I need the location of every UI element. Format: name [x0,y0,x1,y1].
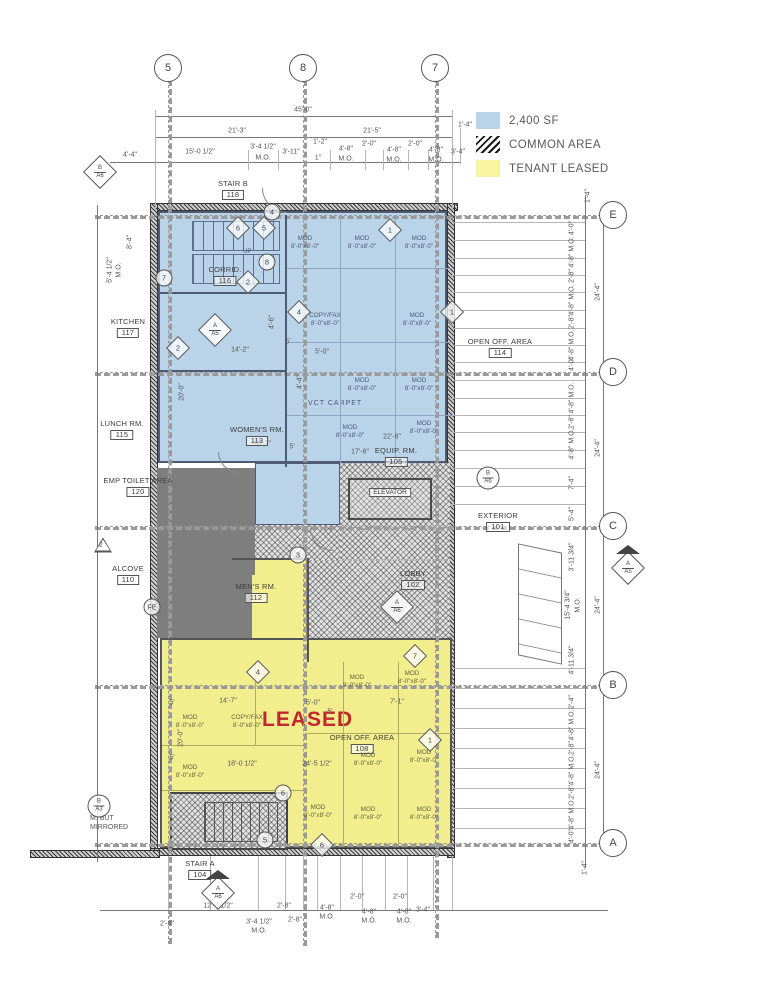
dimension-label: 4'-4" [123,152,137,159]
grid-bubble-7: 7 [421,54,449,82]
line [303,856,304,910]
dimension-label: 4'-8" M.O. [569,382,576,413]
elevator-label: ELEVATOR [369,488,411,497]
line [452,432,585,433]
room-tag-113: WOMEN'S RM.113 [230,426,284,446]
dimension-label: 5' [289,444,294,451]
cubicle-label: MOD8'-0"x8'-0" [336,424,364,440]
dimension-label: 4'-8" M.O. [569,798,576,829]
line [100,910,608,911]
dimension-label: 24'-4" [595,439,602,457]
room-tag-110: ALCOVE110 [112,565,144,585]
dimension-label: 1'-4" [582,861,589,875]
line [395,215,396,465]
dimension-label: 45'-0" [294,107,312,114]
ref-tag-triangle [616,545,640,554]
line [408,150,409,170]
room-number: 116 [214,276,237,287]
line [317,856,318,910]
line [452,768,585,769]
dimension-label: M.O. [255,155,270,162]
line [452,380,585,381]
room-name: CORRID. [208,266,241,275]
line [452,110,453,210]
line [168,80,172,944]
room-name: LUNCH RM. [100,420,143,429]
dimension-label: 15'-4 3/4" [565,590,572,620]
dimension-label: 4'-8" [387,147,401,154]
line [285,415,452,416]
keynote-tag: 5 [257,832,274,849]
elevator-shaft: ELEVATOR [348,478,432,520]
room-number: 110 [117,575,140,586]
dimension-label: 2'-8" [569,741,576,755]
line [365,150,366,170]
cubicle-label: MOD8'-0"x8'-0" [291,235,319,251]
legend-row-leased: TENANT LEASED [476,160,609,177]
line [407,856,408,910]
dimension-label: 14'-7" [219,698,237,705]
cubicle-label: MOD8'-0"x8'-0" [405,235,433,251]
dimension-label: 2'-8" [569,315,576,329]
ref-tag: AA5 [611,551,645,585]
legend-swatch-hatch [476,136,500,153]
room-name: OPEN OFF. AREA [330,734,394,743]
dimension-label: 22'-6" [383,434,401,441]
vct-carpet-note: VCT CARPET [308,400,362,407]
dimension-label: 4'-8" M.O. [569,428,576,459]
dimension-label: 14'-2" [231,347,249,354]
legend: 2,400 SF COMMON AREA TENANT LEASED [476,112,609,184]
dimension-label: 2'-8" [277,903,291,910]
room-number: 102 [401,580,424,591]
dimension-label: 20'-0" [179,383,186,401]
dimension-label: 2'-0" [408,141,422,148]
room-tag-115: LUNCH RM.115 [100,420,143,440]
cubicle-label: MOD8'-0"x8'-0" [354,752,382,768]
line [258,856,259,910]
dimension-label: 2'-8" [569,269,576,283]
dimension-label: 3'-4 1/2" [250,144,276,151]
room-tag-105: EQUIP. RM.105 [375,447,417,467]
line [452,688,585,689]
room-number: 118 [222,190,245,201]
line [452,788,585,789]
line [452,415,585,416]
room-tag-112: MEN'S RM.112 [236,583,277,603]
dimension-label: 24'-4" [595,596,602,614]
dimension-label: 4'-11 3/4" [569,646,576,675]
dimension-label: 4'-8" M.O. [569,329,576,360]
line [307,558,309,662]
dimension-label: M.O. [319,914,334,921]
grid-bubble-E: E [599,201,627,229]
dimension-label: 5' [169,700,174,707]
room-name: STAIR B [218,180,248,189]
dimension-label: 4'-4" [297,375,304,389]
cubicle-label: MOD8'-0"x8'-0" [398,670,426,686]
room-name: EXTERIOR [478,512,518,521]
line [385,856,386,910]
cubicle-label: MOD8'-0"x8'-0" [354,806,382,822]
dimension-label: 15'-0 1/2" [185,149,215,156]
room-name: OPEN OFF. AREA [468,338,532,347]
line [452,486,585,487]
room-tag-117: KITCHEN117 [111,318,145,338]
line [157,292,285,294]
line [452,292,585,293]
legend-row-common: COMMON AREA [476,136,609,153]
line [452,258,585,259]
dimension-label: 2'-8" [288,917,302,924]
dimension-label: 5'-4 1/2" [107,257,114,283]
dimension-label: 4'-8" [320,905,334,912]
dimension-label: 3'-4 1/2" [246,919,272,926]
grid-bubble-B: B [599,671,627,699]
line [285,342,452,343]
dimension-label: 24'-5 1/2" [302,761,332,768]
line [383,150,384,170]
dimension-label: 18'-0 1/2" [227,761,257,768]
dimension-label: M.O. [116,262,123,277]
dimension-label: 2'-8" [569,785,576,799]
line [97,205,98,862]
line [330,150,331,170]
dimension-label: 5'-4" [569,507,576,521]
grid-bubble-A: A [599,829,627,857]
dimension-label: 4'-8" M.O. [569,284,576,315]
dimension-label: 4'-0" [569,221,576,235]
cubicle-label: MOD8'-0"x8'-0" [348,377,376,393]
dimension-label: 21'-5" [363,128,381,135]
line [155,110,156,210]
line [433,856,434,910]
ref-tag-triangle [206,870,230,879]
legend-label-common: COMMON AREA [509,139,601,151]
line [452,828,585,829]
dimension-label: 1'-4" [458,122,472,129]
cubicle-label: MOD8'-0"x8'-0" [176,764,204,780]
cubicle-label: MOD8'-0"x8'-0" [348,235,376,251]
dimension-label: 4'-8" [397,909,411,916]
line [452,310,585,311]
line [248,150,249,170]
room-name: WOMEN'S RM. [230,426,284,435]
line [452,728,585,729]
line [452,748,585,749]
dimension-label: 2'-0" [393,894,407,901]
room-name: LOBBY [400,570,426,579]
cubicle-label: MOD8'-0"x8'-0" [410,749,438,765]
line [452,240,585,241]
room-number: 117 [117,328,140,339]
grid-bubble-8: 8 [289,54,317,82]
dimension-label: M.O. [396,918,411,925]
line [452,275,585,276]
line [460,128,461,164]
grid-bubble-C: C [599,512,627,540]
dimension-label: 4'-6" [269,315,276,329]
dimension-label: M.O. [251,928,266,935]
grid-bubble-D: D [599,358,627,386]
dimension-label: M.O. [575,597,582,612]
dimension-label: 4'-8" [339,146,353,153]
dimension-label: 20'-0" [178,729,185,747]
cubicle-label: MOD8'-0"x8'-0" [304,804,332,820]
keynote-tag: 7 [156,270,173,287]
cubicle-label: COPY/FAX8'-0"x8'-0" [231,714,263,730]
dimension-label: 4'-8" M.O. [569,709,576,740]
ref-tag: BA6 [83,155,117,189]
legend-label-2400sf: 2,400 SF [509,115,559,127]
leased-stamp: LEASED [262,708,353,732]
room-number: 115 [111,430,134,441]
room-tag-120: EMP TOILET AREA120 [103,477,172,497]
dimension-label: 7'-4" [569,476,576,490]
revision-triangle: 2 [94,538,112,553]
line [340,856,341,910]
cubicle-label: MOD8'-0"x8'-0" [176,714,204,730]
dimension-label: 2'-4" [569,695,576,709]
room-name: EQUIP. RM. [375,447,417,456]
dimension-label: 2'-0" [362,141,376,148]
dimension-label: 3'-11" [282,149,299,156]
ref-tag: BA3 [88,795,111,818]
line [168,856,169,910]
dimension-label: 3'-4" [416,907,430,914]
cubicle-label: MOD8'-0"x8'-0" [410,420,438,436]
room-number: 114 [489,348,512,359]
dimension-label: 21'-3" [228,128,246,135]
legend-swatch-yellow [476,160,500,177]
dimension-label: 2'-0" [350,894,364,901]
dimension-label: 1'-4" [585,189,592,203]
line [452,450,585,451]
dimension-label: 24'-4" [595,283,602,301]
room-name: STAIR A [185,860,215,869]
line [285,268,452,269]
room-tag-114: OPEN OFF. AREA114 [468,338,532,358]
line [452,504,585,505]
exterior-stair [518,543,562,664]
keynote-tag: FE [144,599,161,616]
dimension-label: 5' [285,339,290,346]
cubicle-label: COPY/FAX8'-0"x8'-0" [309,312,341,328]
dimension-label: 3'-4" [451,149,465,156]
line [452,708,585,709]
cubicle-label: MOD8'-0"x8'-0" [405,377,433,393]
keynote-tag: 8 [259,254,276,271]
dimension-label: M.O. [428,157,443,164]
dimension-label: 4'-0" [569,357,576,371]
dimension-label: 2'-8" [160,921,174,928]
line [452,468,585,469]
dimension-label: 4'-8" [429,147,443,154]
room-number: 113 [246,436,269,447]
room-number: 120 [126,487,149,498]
cubicle-label: MOD8'-0"x8'-0" [343,674,371,690]
keynote-tag: 3 [290,547,307,564]
room-number: 105 [384,457,407,468]
ref-tag: BA6 [477,467,500,490]
sidewalk-band [30,850,160,858]
line [398,662,399,846]
dimension-label: 1'-2" [313,139,327,146]
floor-plan-canvas: ELEVATOR 2,400 SF COMMON AREA TENANT LEA… [0,0,773,1000]
keynote-tag: 6 [275,785,292,802]
dimension-label: 1" [315,155,321,162]
legend-swatch-blue [476,112,500,129]
dimension-label: 5'-0" [306,700,320,707]
room-name: EMP TOILET AREA [103,477,172,486]
room-name: KITCHEN [111,318,145,327]
legend-row-2400sf: 2,400 SF [476,112,609,129]
legend-label-leased: TENANT LEASED [509,163,609,175]
dimension-label: 8'-4" [127,235,134,249]
cubicle-label: MOD8'-0"x8'-0" [403,312,431,328]
dimension-label: 7'-1" [390,699,404,706]
dimension-label: 17'-6" [351,449,369,456]
dimension-label: M.O. [361,918,376,925]
dimension-label: 24'-4" [595,761,602,779]
dimension-label: M.O. [386,157,401,164]
line [278,150,279,170]
cubicle-label: MOD8'-0"x8'-0" [410,806,438,822]
line [452,668,585,669]
dimension-label: 5' [169,755,174,762]
line [362,856,363,910]
dimension-label: 3'-11 3/4" [569,543,576,572]
line [585,195,586,868]
dimension-label: M.O. [338,156,353,163]
dimension-label: 4'-8" M.O. [569,236,576,267]
room-tag-118: STAIR B118 [218,180,248,200]
line [452,362,585,363]
dimension-label: 2'-8" [569,415,576,429]
line [157,370,285,372]
room-tag-102: LOBBY102 [400,570,426,590]
line [452,328,585,329]
tenant-2400sf-region-lower [255,463,340,525]
room-tag-101: EXTERIOR101 [478,512,518,532]
room-number: 101 [486,522,509,533]
line [452,808,585,809]
dimension-label: 4'-8" [362,909,376,916]
line [452,398,585,399]
line [452,856,453,910]
room-number: 112 [245,593,268,604]
room-name: ALCOVE [112,565,144,574]
dimension-label: 5'-0" [315,349,329,356]
grid-bubble-5: 5 [154,54,182,82]
dimension-label: 5' [327,709,332,716]
line [452,222,585,223]
dimension-label: 4'-8" M.O. [569,754,576,785]
room-name: MEN'S RM. [236,583,277,592]
up-note: UP [243,249,251,255]
dimension-label: 4'-0" [569,829,576,843]
